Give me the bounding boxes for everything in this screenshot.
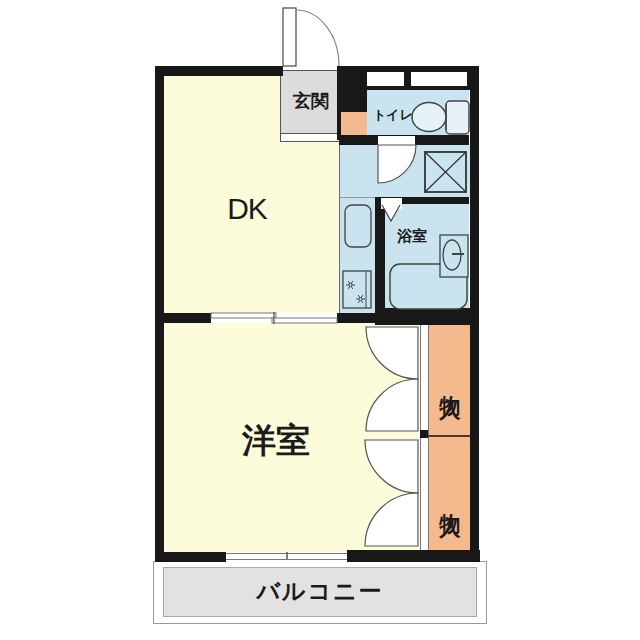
storage-upper-label: 物入 — [438, 354, 462, 408]
bathroom-label: 浴室 — [382, 228, 442, 244]
storage-lower-label: 物入 — [438, 472, 462, 526]
balcony-label: バルコニー — [163, 578, 477, 604]
western-room-label: 洋室 — [176, 421, 376, 461]
floor-plan: DK 洋室 玄関 トイレ 浴室 物入 物入 バルコニー — [0, 0, 640, 640]
dk-label: DK — [197, 191, 297, 227]
entrance-label: 玄関 — [280, 90, 342, 112]
toilet-label: トイレ — [367, 107, 419, 123]
labels-layer: DK 洋室 玄関 トイレ 浴室 物入 物入 バルコニー — [0, 0, 640, 640]
